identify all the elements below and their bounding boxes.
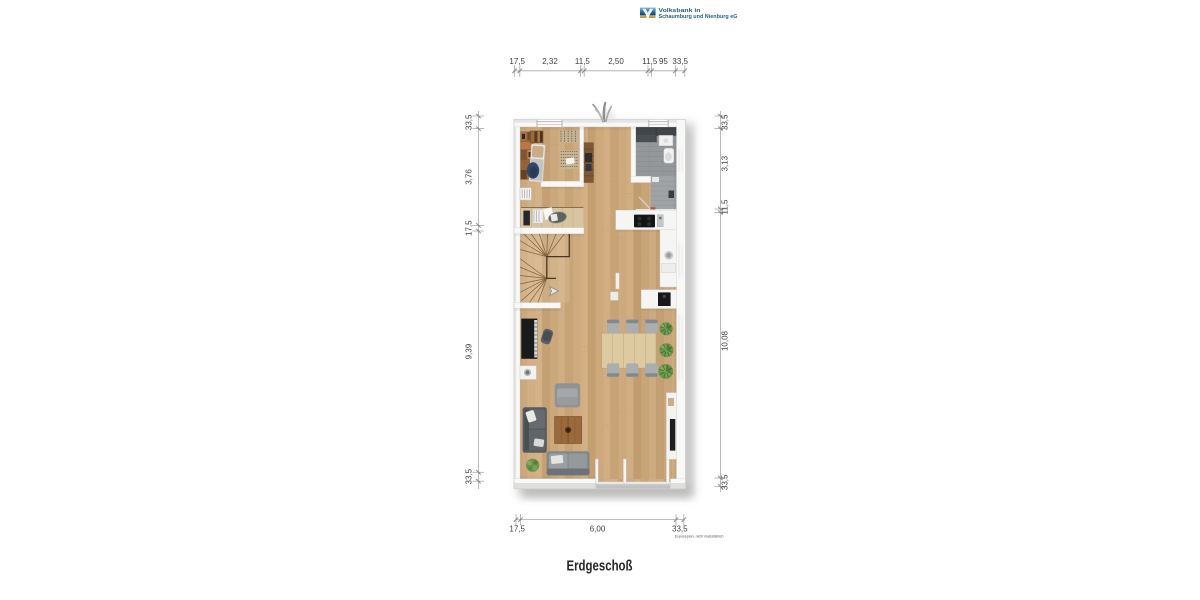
svg-text:Erdgeschoß: Erdgeschoß xyxy=(567,559,633,575)
svg-text:17,5: 17,5 xyxy=(509,525,525,534)
svg-text:17,5: 17,5 xyxy=(465,220,474,236)
svg-text:3,76: 3,76 xyxy=(465,169,474,185)
svg-text:33,5: 33,5 xyxy=(720,114,729,130)
svg-text:2,50: 2,50 xyxy=(608,57,624,66)
svg-text:11,5: 11,5 xyxy=(575,57,591,66)
svg-text:33,5: 33,5 xyxy=(465,468,474,484)
svg-text:11,5: 11,5 xyxy=(642,57,658,66)
svg-text:9,39: 9,39 xyxy=(465,343,474,359)
svg-text:95: 95 xyxy=(659,57,668,66)
svg-text:33,5: 33,5 xyxy=(465,114,474,130)
svg-text:33,5: 33,5 xyxy=(672,525,688,534)
svg-text:17,5: 17,5 xyxy=(509,57,525,66)
svg-text:Schaumburg und Nienburg eG: Schaumburg und Nienburg eG xyxy=(659,14,738,20)
svg-text:3,13: 3,13 xyxy=(720,155,729,171)
svg-text:2,32: 2,32 xyxy=(542,57,558,66)
svg-text:Exposéplan, nicht maßstäblich: Exposéplan, nicht maßstäblich xyxy=(675,535,724,539)
svg-text:33,5: 33,5 xyxy=(672,57,688,66)
svg-text:11,5: 11,5 xyxy=(720,199,729,215)
svg-text:10,08: 10,08 xyxy=(720,330,729,351)
svg-text:33,5: 33,5 xyxy=(720,474,729,490)
svg-text:6,00: 6,00 xyxy=(590,525,606,534)
